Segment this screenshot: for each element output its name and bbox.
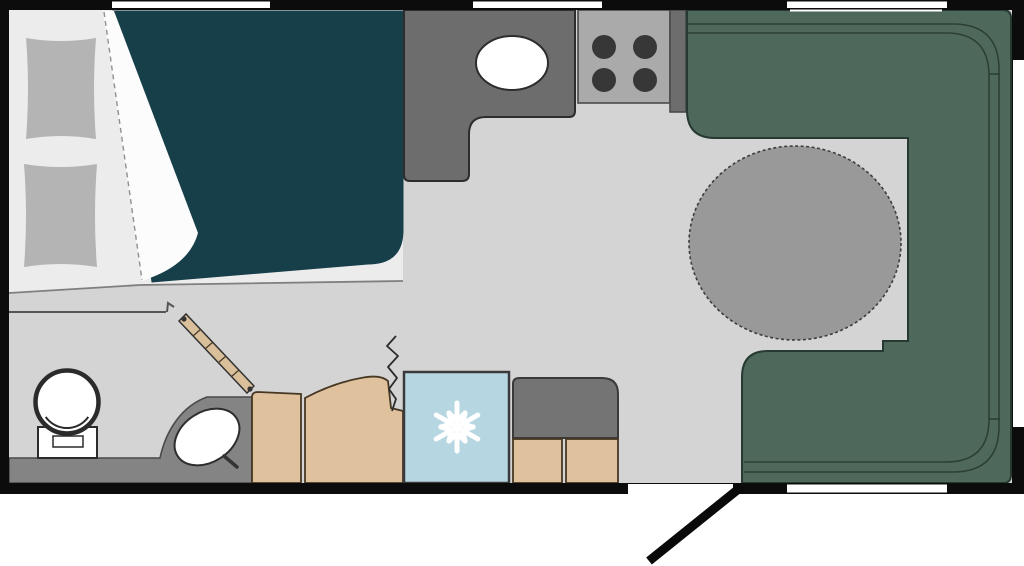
burner <box>592 68 616 92</box>
overhead-cabinet <box>513 378 618 438</box>
pillow <box>26 38 96 139</box>
door-knob <box>247 386 252 391</box>
cabinet <box>566 439 618 483</box>
entry-door-swing <box>649 487 741 561</box>
caravan-floorplan <box>0 0 1024 566</box>
window-lounge-top <box>787 2 947 9</box>
window-lounge-top-inner-line <box>790 10 942 12</box>
cabinet <box>513 439 562 483</box>
kitchen-sink <box>476 36 548 90</box>
counter-end-panel <box>670 10 686 112</box>
wardrobe-cabinet <box>305 377 403 483</box>
window-rear <box>1013 60 1024 427</box>
pillow <box>24 164 97 267</box>
burner <box>633 68 657 92</box>
dining-table <box>689 146 901 340</box>
wall-left <box>0 0 9 494</box>
cabinet <box>252 392 301 483</box>
window-bed <box>112 2 270 9</box>
toilet-seat-hinge <box>53 436 83 447</box>
floorplan-svg <box>0 0 1024 566</box>
entry-door-opening <box>628 484 733 494</box>
stove <box>578 10 670 103</box>
door-knob <box>181 316 186 321</box>
window-lounge-bottom <box>787 485 947 493</box>
burner <box>592 35 616 59</box>
burner <box>633 35 657 59</box>
bed-area <box>9 10 403 293</box>
window-kitchen <box>473 2 602 9</box>
toilet-bowl <box>36 371 99 434</box>
